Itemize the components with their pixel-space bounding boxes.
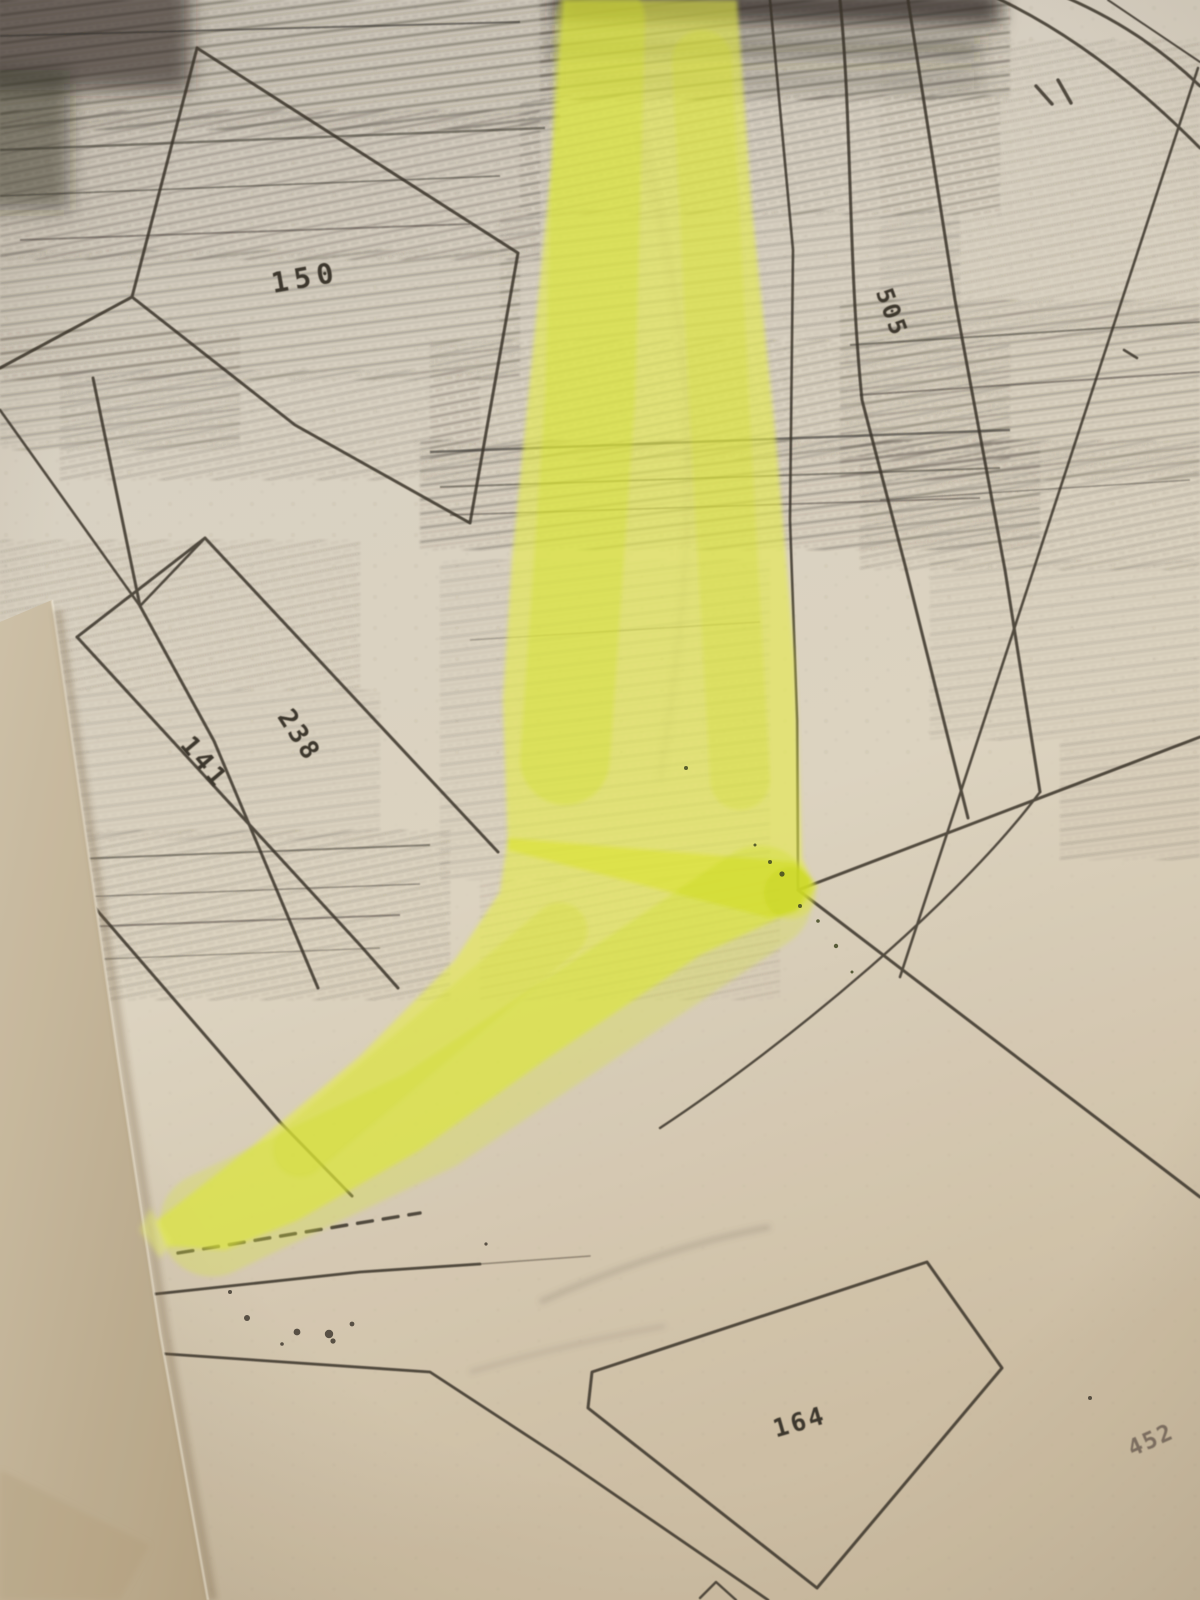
- map-photo-canvas: 150 238 141 505 164 452: [0, 0, 1200, 1600]
- photo-tint-overlay: [0, 0, 1200, 1600]
- photographed-cadastral-map: 150 238 141 505 164 452: [0, 0, 1200, 1600]
